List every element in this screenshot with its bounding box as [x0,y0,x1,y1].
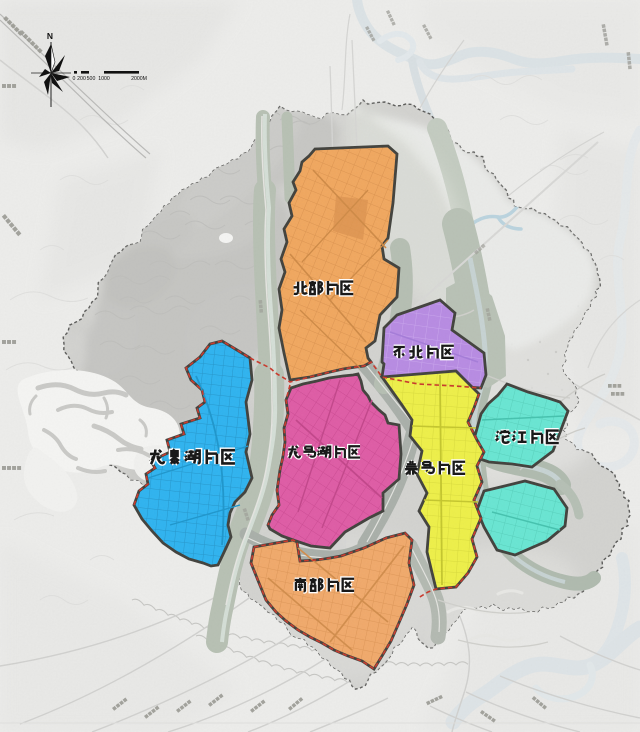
svg-text:2000M: 2000M [131,76,147,82]
svg-text:1000: 1000 [98,76,110,82]
svg-text:0: 0 [73,76,76,82]
svg-text:N: N [47,31,53,41]
svg-text:500: 500 [87,76,96,82]
svg-text:200: 200 [77,76,86,82]
